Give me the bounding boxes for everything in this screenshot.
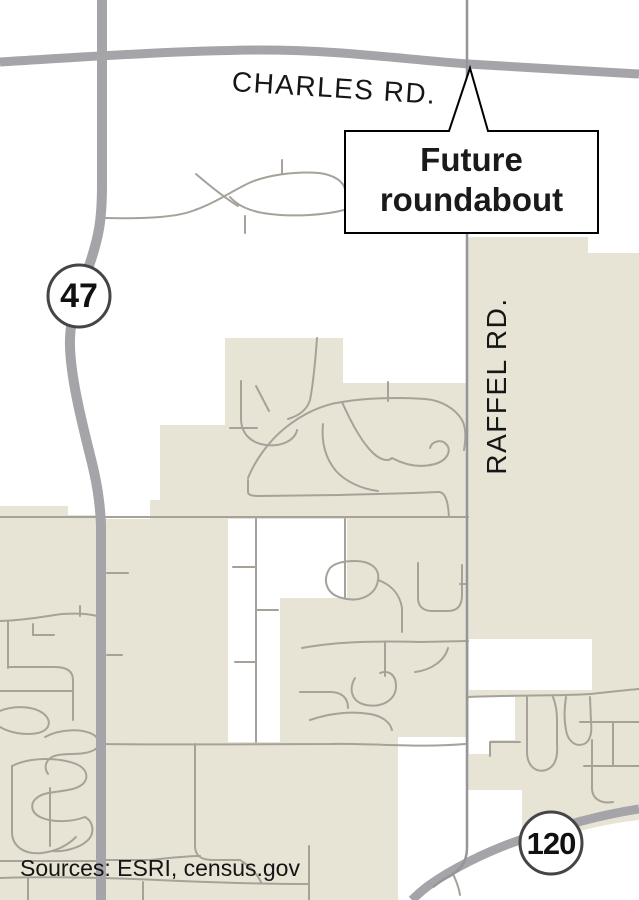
callout-line-2: roundabout (345, 180, 598, 220)
map-canvas (0, 0, 639, 900)
callout-line-1: Future (345, 140, 598, 180)
sources-attribution: Sources: ESRI, census.gov (20, 855, 300, 882)
future-roundabout-callout: Future roundabout (345, 140, 598, 233)
route-47-shield-number: 47 (49, 277, 109, 315)
route-120-shield-number: 120 (511, 826, 591, 862)
raffel-rd-label: RAFFEL RD. (480, 286, 514, 486)
map-figure: CHARLES RD. RAFFEL RD. Future roundabout… (0, 0, 639, 900)
